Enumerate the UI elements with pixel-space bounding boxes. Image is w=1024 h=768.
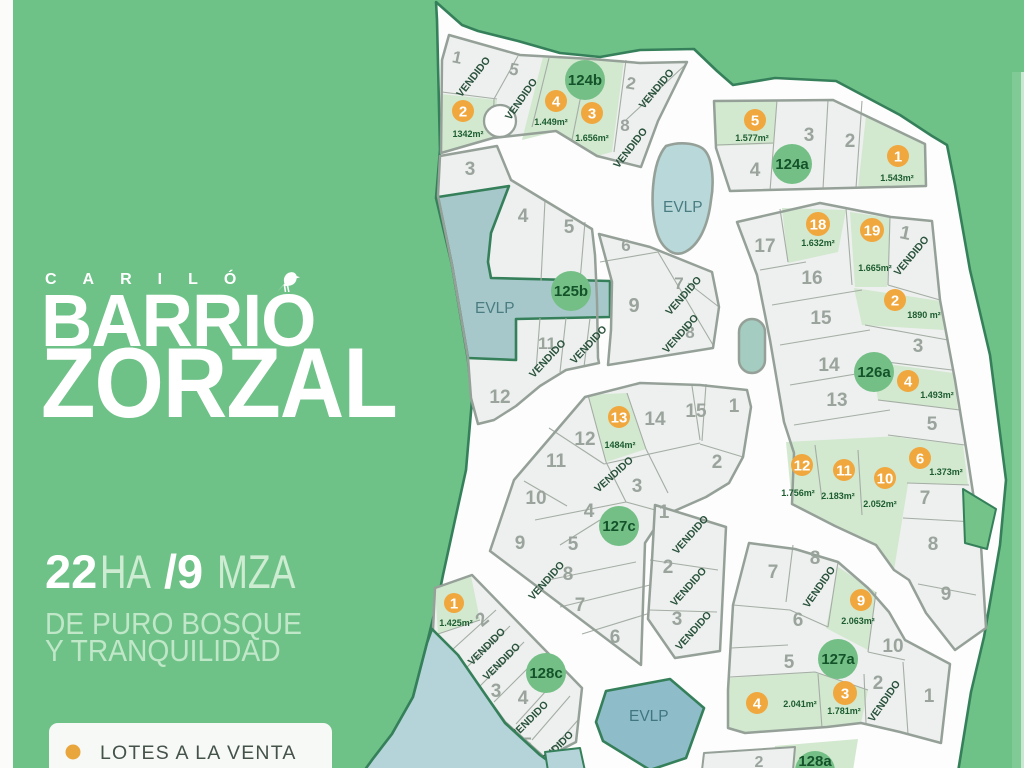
svg-text:1.665m²: 1.665m²	[858, 263, 892, 273]
svg-text:126a: 126a	[857, 364, 891, 381]
svg-text:9: 9	[515, 533, 526, 554]
svg-text:4: 4	[750, 160, 761, 181]
svg-text:12: 12	[574, 429, 595, 450]
svg-text:ZORZAL: ZORZAL	[41, 328, 397, 438]
svg-text:6: 6	[916, 450, 924, 467]
svg-text:12: 12	[489, 387, 510, 408]
svg-text:1.493m²: 1.493m²	[920, 390, 954, 400]
svg-text:15: 15	[685, 401, 707, 422]
svg-text:2.063m²: 2.063m²	[841, 616, 875, 626]
svg-text:12: 12	[794, 457, 811, 474]
svg-text:4: 4	[904, 373, 913, 390]
svg-text:11: 11	[546, 451, 567, 472]
svg-text:2.041m²: 2.041m²	[783, 699, 817, 709]
svg-text:10: 10	[525, 488, 546, 509]
svg-text:9: 9	[941, 584, 952, 605]
svg-text:15: 15	[810, 308, 832, 329]
svg-text:124a: 124a	[775, 156, 809, 173]
svg-text:6: 6	[610, 627, 621, 648]
svg-text:14: 14	[818, 355, 840, 376]
svg-text:3: 3	[465, 159, 476, 180]
svg-text:4: 4	[753, 695, 762, 712]
svg-text:4: 4	[552, 93, 561, 110]
svg-text:1.373m²: 1.373m²	[929, 467, 963, 477]
svg-text:7: 7	[575, 595, 586, 616]
svg-text:128c: 128c	[529, 665, 562, 682]
svg-text:5: 5	[751, 112, 759, 129]
svg-text:2.183m²: 2.183m²	[821, 491, 855, 501]
svg-text:3: 3	[632, 476, 643, 497]
svg-text:13: 13	[611, 409, 628, 426]
svg-text:11: 11	[836, 462, 852, 479]
svg-text:1: 1	[450, 595, 458, 612]
svg-text:1.425m²: 1.425m²	[439, 618, 473, 628]
svg-text:125b: 125b	[554, 283, 588, 300]
svg-text:1: 1	[659, 502, 670, 523]
svg-text:2: 2	[873, 673, 884, 694]
svg-text:7: 7	[768, 562, 779, 583]
svg-text:10: 10	[877, 470, 894, 487]
svg-text:2.052m²: 2.052m²	[863, 499, 897, 509]
svg-text:3: 3	[588, 105, 596, 122]
svg-text:1.781m²: 1.781m²	[827, 706, 861, 716]
svg-text:1484m²: 1484m²	[604, 440, 635, 450]
svg-text:LOTES A LA VENTA: LOTES A LA VENTA	[100, 742, 297, 764]
svg-text:124b: 124b	[568, 72, 602, 89]
svg-text:1890 m²: 1890 m²	[907, 310, 941, 320]
svg-text:3: 3	[491, 681, 502, 702]
svg-text:2: 2	[845, 131, 856, 152]
svg-text:3: 3	[913, 336, 924, 357]
svg-text:16: 16	[801, 268, 822, 289]
svg-text:1.449m²: 1.449m²	[534, 117, 568, 127]
svg-text:5: 5	[564, 217, 575, 238]
svg-text:EVLP: EVLP	[475, 300, 515, 317]
svg-text:2: 2	[712, 452, 723, 473]
svg-text:6: 6	[621, 236, 630, 255]
svg-text:2: 2	[459, 103, 467, 120]
svg-text:5: 5	[927, 414, 938, 435]
svg-text:1: 1	[894, 148, 902, 165]
svg-text:1: 1	[729, 396, 740, 417]
svg-text:1.543m²: 1.543m²	[880, 173, 914, 183]
svg-text:19: 19	[864, 222, 881, 239]
svg-text:1.632m²: 1.632m²	[801, 238, 835, 248]
svg-text:9: 9	[628, 295, 639, 317]
svg-text:18: 18	[810, 216, 827, 233]
svg-text:4: 4	[518, 206, 529, 227]
svg-text:1: 1	[924, 686, 935, 707]
svg-text:8: 8	[620, 116, 629, 135]
svg-text:EVLP: EVLP	[663, 199, 703, 216]
svg-text:17: 17	[754, 236, 775, 257]
svg-text:3: 3	[804, 125, 815, 146]
svg-text:Y TRANQUILIDAD: Y TRANQUILIDAD	[45, 634, 281, 669]
svg-text:5: 5	[568, 534, 579, 555]
svg-text:EVLP: EVLP	[629, 708, 669, 725]
svg-text:1.756m²: 1.756m²	[781, 488, 815, 498]
svg-text:2: 2	[663, 557, 674, 578]
svg-text:22: 22	[45, 545, 97, 598]
svg-text:128a: 128a	[798, 753, 832, 768]
svg-text:MZA: MZA	[217, 546, 296, 598]
svg-text:13: 13	[826, 390, 847, 411]
svg-text:HA: HA	[100, 546, 152, 598]
svg-text:1.656m²: 1.656m²	[575, 133, 609, 143]
svg-text:3: 3	[841, 685, 849, 702]
svg-text:2: 2	[891, 292, 899, 309]
svg-text:3: 3	[672, 609, 683, 630]
svg-text:5: 5	[784, 652, 795, 673]
svg-text:127a: 127a	[821, 651, 855, 668]
svg-text:4: 4	[584, 501, 595, 522]
svg-text:4: 4	[518, 688, 529, 709]
svg-text:6: 6	[793, 610, 804, 631]
svg-text:14: 14	[644, 409, 666, 430]
svg-text:2: 2	[755, 754, 764, 768]
svg-text:10: 10	[882, 636, 903, 657]
svg-text:127c: 127c	[602, 518, 635, 535]
svg-text:7: 7	[920, 488, 931, 509]
svg-text:9: 9	[857, 592, 865, 609]
svg-text:8: 8	[810, 548, 821, 569]
svg-text:/9: /9	[164, 545, 203, 598]
svg-text:1.577m²: 1.577m²	[735, 133, 769, 143]
svg-text:8: 8	[928, 534, 939, 555]
svg-text:1342m²: 1342m²	[452, 129, 483, 139]
